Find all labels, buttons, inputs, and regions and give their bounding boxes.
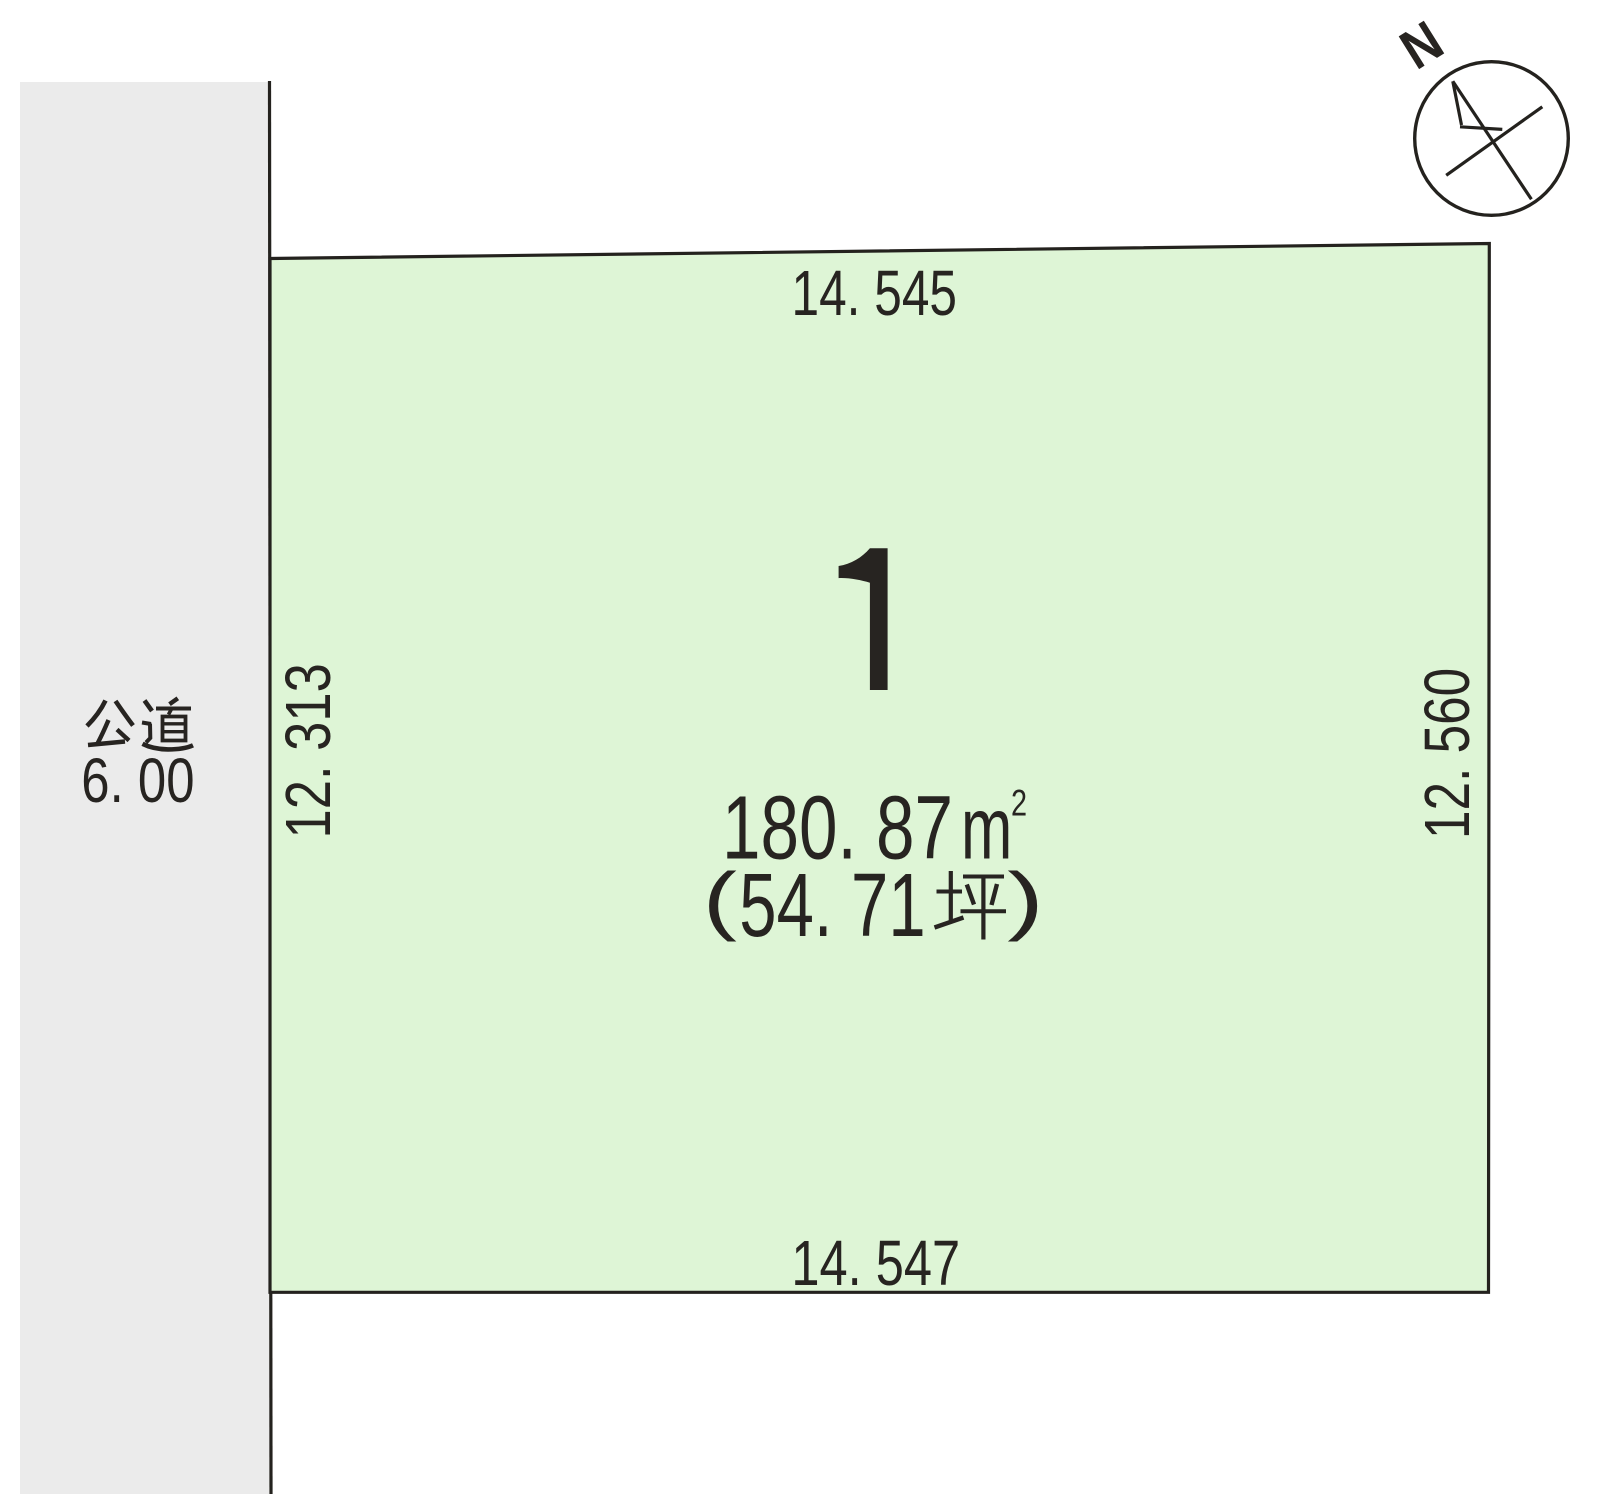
svg-text:): ) (1007, 857, 1044, 942)
svg-text:54. 71: 54. 71 (739, 856, 925, 956)
svg-text:(: ( (703, 858, 737, 943)
svg-text:12. 560: 12. 560 (1411, 668, 1483, 839)
svg-text:6. 00: 6. 00 (81, 746, 194, 816)
svg-text:m: m (961, 780, 1012, 878)
svg-text:2: 2 (1011, 783, 1027, 824)
svg-text:14. 545: 14. 545 (792, 257, 958, 329)
svg-text:12. 313: 12. 313 (272, 663, 344, 838)
svg-text:14. 547: 14. 547 (791, 1227, 960, 1299)
